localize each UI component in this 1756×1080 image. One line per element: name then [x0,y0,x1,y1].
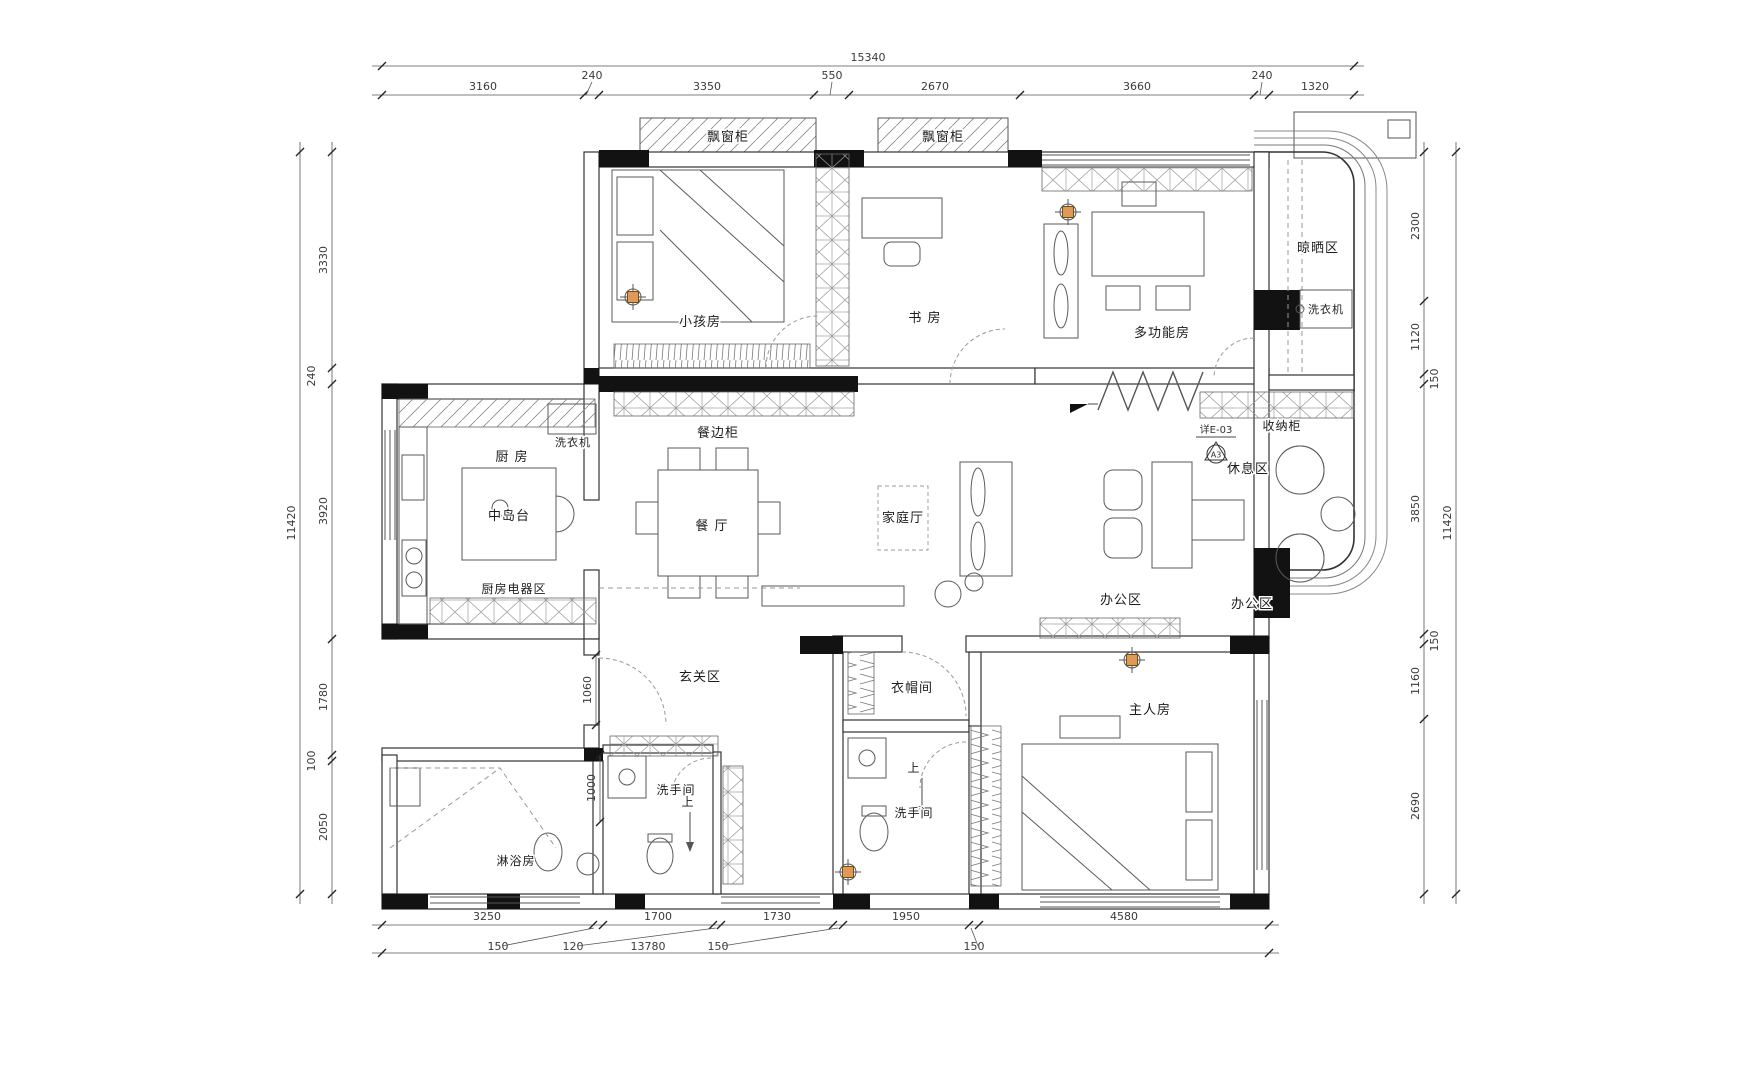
label-island: 中岛台 [488,508,530,524]
family-hall-furniture [762,462,1012,607]
label-storage-cabinet: 收纳柜 [1262,419,1301,433]
floor-plan-canvas: 15340 3160 240 3350 550 2670 3660 240 13… [0,0,1756,1080]
dim-left-5: 100 [305,751,318,772]
step-arrows [686,778,926,852]
dim-right-3: 150 [1428,369,1441,390]
dim-top-5: 2670 [921,80,949,93]
sideboard-cabinet [614,392,854,416]
dim-entry-depth: 1060 [581,676,594,704]
label-washer-balcony: 洗衣机 [1308,302,1344,316]
label-washer-kitchen: 洗衣机 [555,435,591,449]
dim-bot-6: 150 [708,940,729,953]
label-bay-cabinet-1: 飘窗柜 [707,129,749,145]
label-up-2: 上 [907,761,920,775]
downlight-icon [620,284,646,310]
dim-right-total: 11420 [1441,506,1454,541]
dim-left-3: 3920 [317,497,330,525]
dim-top-7: 240 [1252,69,1273,82]
step-arrow-1 [686,842,694,852]
dim-top-2: 240 [582,69,603,82]
dim-left-6: 2050 [317,813,330,841]
dim-bot-3: 1700 [644,910,672,923]
label-kitchen: 厨 房 [495,449,528,465]
walls [382,152,1354,909]
label-office-area-2: 办公区 [1231,597,1273,612]
dim-bottom-total: 13780 [631,940,666,953]
dim-bot-2: 150 [488,940,509,953]
dim-right-5: 150 [1428,631,1441,652]
bath-guest-fixtures [608,756,673,874]
door-direction-arrow [1070,404,1088,413]
dim-right-1: 2300 [1409,212,1422,240]
detail-ref-text: 详E-03 [1200,423,1233,436]
label-cloakroom: 衣帽间 [891,680,933,696]
dim-bot-9: 4580 [1110,910,1138,923]
label-bay-cabinet-2: 飘窗柜 [922,129,964,145]
dim-bath-width: 1000 [585,774,598,802]
label-sideboard: 餐边柜 [697,425,739,441]
dim-right-4: 3850 [1409,495,1422,523]
master-bed [1022,716,1218,890]
dim-right-6: 1160 [1409,667,1422,695]
dim-right-7: 2690 [1409,792,1422,820]
hall-column-cabinet [723,766,743,884]
label-appliance-area: 厨房电器区 [481,581,546,596]
storage-cabinet-band [1200,392,1354,418]
balcony-curved-shell [1254,131,1387,594]
kitchen-appliance-cabinet [430,598,596,624]
cloakroom-hanger [848,652,874,714]
dim-left-2: 240 [305,366,318,387]
study-desk [862,198,942,266]
label-bath-master: 洗手间 [894,806,933,820]
bath-master-fixtures [848,738,888,851]
kitchen-counter-top [399,399,595,427]
label-entry: 玄关区 [679,670,721,685]
downlights [620,199,1145,885]
label-shower-room: 淋浴房 [496,853,535,868]
cabinet-bands [399,154,1354,886]
label-family-hall: 家庭厅 [882,510,924,526]
label-study: 书 房 [908,310,941,326]
furniture [390,170,1355,890]
dimension-chain-bottom: 3250 1700 1730 1950 4580 150 120 13780 1… [372,910,1279,957]
dim-bot-1: 3250 [473,910,501,923]
dim-left-total: 11420 [285,506,298,541]
detail-bubble-text: A3 [1211,451,1222,460]
detail-marker: 详E-03 A3 [1196,423,1236,463]
wardrobe-column [816,154,849,366]
room-labels: 飘窗柜 飘窗柜 小孩房 书 房 多功能房 晾晒区 洗衣机 收纳柜 休息区 办公区… [481,129,1344,868]
dim-bot-4: 120 [563,940,584,953]
label-up-1: 上 [681,795,694,809]
label-master-room: 主人房 [1129,702,1171,718]
dim-top-total: 15340 [851,51,886,64]
downlight-icon [1055,199,1081,225]
label-dining: 餐 厅 [695,518,728,534]
dim-bot-5: 1730 [763,910,791,923]
balcony-interior [1288,160,1352,372]
kids-wardrobe [614,344,810,368]
dim-top-4: 550 [822,69,843,82]
dim-left-4: 1780 [317,683,330,711]
entry-shoe-cabinet [610,736,718,756]
label-drying-area: 晾晒区 [1297,240,1339,256]
dim-top-8: 1320 [1301,80,1329,93]
dimension-chain-left: 11420 3330 240 3920 1780 100 2050 [285,142,336,904]
shower-room-fixtures [390,768,599,875]
label-office-area-1: 办公区 [1100,593,1142,608]
dim-top-1: 3160 [469,80,497,93]
dim-top-3: 3350 [693,80,721,93]
dim-right-2: 1120 [1409,323,1422,351]
label-kids-room: 小孩房 [679,314,721,330]
office-desk [1104,462,1244,568]
office-low-cabinet [1040,618,1180,638]
dim-bot-7: 1950 [892,910,920,923]
floor-plan-page: 15340 3160 240 3350 550 2670 3660 240 13… [0,0,1756,1080]
multi-room-cabinet [1042,167,1252,191]
dimension-chain-right: 2300 1120 150 3850 150 1160 2690 11420 [1409,142,1460,904]
dim-bot-8: 150 [964,940,985,953]
label-rest-area: 休息区 [1227,461,1269,477]
master-wardrobe [971,726,1001,886]
dim-left-1: 3330 [317,246,330,274]
dim-top-6: 3660 [1123,80,1151,93]
label-multi-room: 多功能房 [1134,325,1190,341]
dimension-chain-top: 15340 3160 240 3350 550 2670 3660 240 13… [372,51,1364,99]
balcony-ac-platform [1294,112,1416,158]
